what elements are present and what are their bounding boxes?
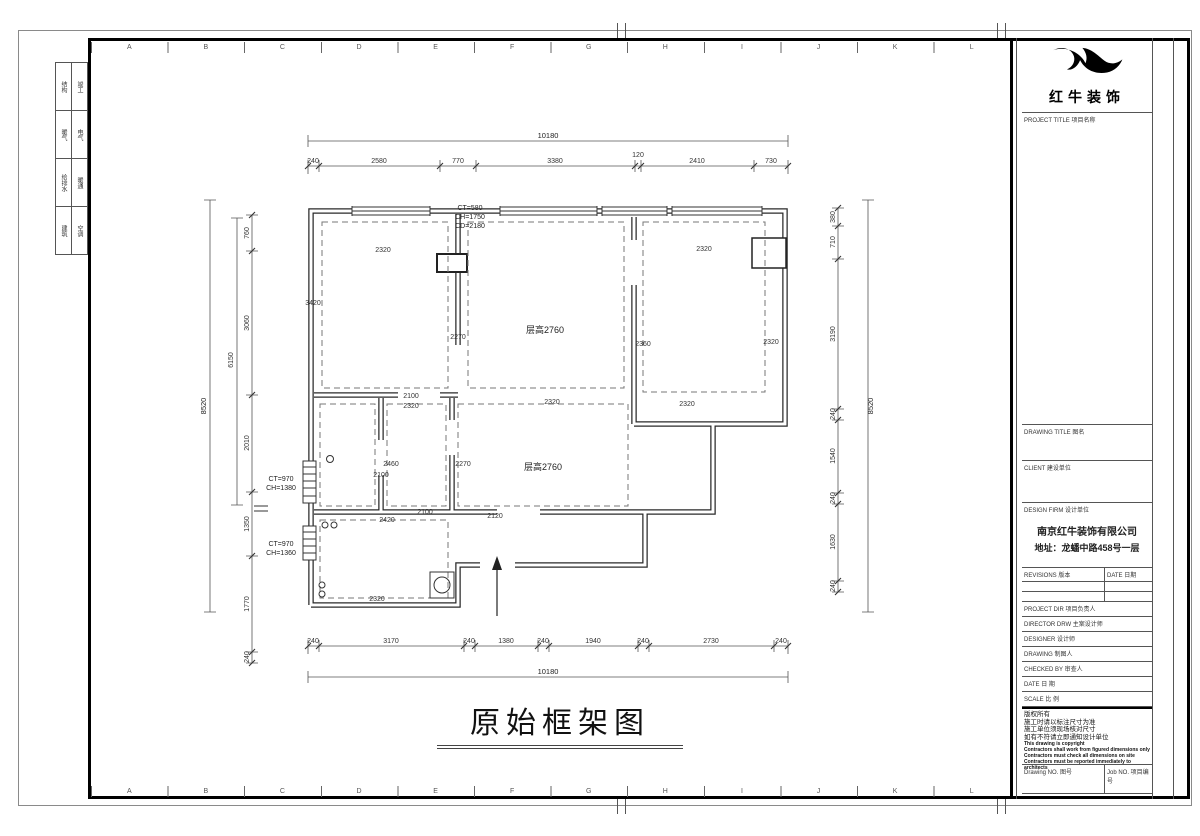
- dimension-lines: [204, 135, 874, 683]
- dim-label: 1630: [830, 534, 837, 550]
- drawing-person-cell: DRAWING 制图人: [1022, 647, 1152, 662]
- dim-label: 6150: [228, 352, 235, 368]
- dim-label: 2360: [635, 341, 651, 348]
- dim-label: 2100: [417, 509, 433, 516]
- window-note: CD=2180: [455, 223, 485, 230]
- dim-label: 2320: [375, 247, 391, 254]
- dim-label: 1380: [498, 638, 514, 645]
- director-cell: DIRECTOR DRW 主案设计师: [1022, 617, 1152, 632]
- revisions-date-label: DATE 日期: [1105, 568, 1152, 581]
- dim-label: 2320: [763, 339, 779, 346]
- project-dir-cell: PROJECT DIR 项目负责人: [1022, 602, 1152, 617]
- dim-label: 2120: [487, 513, 503, 520]
- dim-label: 240: [307, 638, 319, 645]
- designer-cell: DESIGNER 设计师: [1022, 632, 1152, 647]
- title-block: 红牛装饰 PROJECT TITLE 项目名称 DRAWING TITLE 图名…: [1022, 40, 1152, 797]
- dim-label: 2320: [679, 401, 695, 408]
- window-note: CH=1380: [266, 485, 296, 492]
- copyright-line: 如有不符请立即通知设计单位: [1024, 734, 1150, 742]
- dim-label: 240: [830, 492, 837, 504]
- dim-label: 1770: [244, 596, 251, 612]
- dim-label: 2320: [696, 246, 712, 253]
- director-label: DIRECTOR DRW 主案设计师: [1022, 617, 1152, 628]
- dim-label: 2730: [703, 638, 719, 645]
- dim-label: 770: [452, 158, 464, 165]
- dim-label: 2100: [373, 472, 389, 479]
- window-band: [352, 205, 762, 217]
- entry-arrow: [492, 556, 502, 616]
- copyright-line: 施工单位须现场核对尺寸: [1024, 726, 1150, 734]
- dim-label: 8520: [199, 398, 208, 415]
- dim-label: 10180: [538, 667, 559, 676]
- dim-label: 2320: [403, 403, 419, 410]
- dim-label: 120: [632, 152, 644, 159]
- checked-by-cell: CHECKED BY 审查人: [1022, 662, 1152, 677]
- drawing-sheet: A B C D E F G H I J K L A B C D E F G H …: [0, 0, 1200, 836]
- client-cell: CLIENT 建设单位: [1022, 461, 1152, 503]
- dim-label: 1350: [244, 516, 251, 532]
- corner-pier: [752, 238, 786, 268]
- dim-label: 1940: [585, 638, 601, 645]
- dim-label: 3420: [305, 300, 321, 307]
- dim-label: 240: [537, 638, 549, 645]
- revisions-label: REVISIONS 版本: [1022, 568, 1105, 581]
- walls: [311, 211, 785, 605]
- dim-label: 2320: [544, 399, 560, 406]
- dim-label: 240: [830, 580, 837, 592]
- dim-label: 2270: [455, 461, 471, 468]
- copyright-line: 版权所有: [1024, 711, 1150, 719]
- drawing-title-label: DRAWING TITLE 图名: [1022, 425, 1152, 436]
- design-firm-cell: DESIGN FIRM 设计单位 南京红牛装饰有限公司 地址：龙蟠中路458号一…: [1022, 503, 1152, 568]
- dim-label: 380: [830, 211, 837, 223]
- design-firm-name: 南京红牛装饰有限公司: [1022, 523, 1152, 538]
- revisions-row: [1022, 592, 1152, 602]
- copyright-line: 施工时请以标注尺寸为准: [1024, 719, 1150, 727]
- dim-label: 3170: [383, 638, 399, 645]
- design-firm-address: 地址：龙蟠中路458号一层: [1022, 541, 1152, 554]
- room-label: 层高2760: [526, 324, 564, 335]
- dim-label: 1540: [830, 448, 837, 464]
- drawing-no-label: Drawing NO. 图号: [1022, 765, 1105, 794]
- company-logo-cell: 红牛装饰: [1022, 40, 1152, 113]
- dim-label: 3060: [244, 315, 251, 331]
- dim-label: 240: [637, 638, 649, 645]
- window-note: CT=970: [268, 541, 293, 548]
- dim-label: 2100: [403, 393, 419, 400]
- dim-label: 710: [830, 236, 837, 248]
- date-cell: DATE 日 期: [1022, 677, 1152, 692]
- job-no-label: Job NO. 项目编号: [1105, 765, 1152, 794]
- dim-label: 730: [765, 158, 777, 165]
- room-label: 层高2760: [524, 461, 562, 472]
- dim-label: 240: [463, 638, 475, 645]
- drawing-title-cell: DRAWING TITLE 图名: [1022, 425, 1152, 461]
- company-name: 红牛装饰: [1022, 87, 1152, 107]
- window-note: CT=580: [457, 205, 482, 212]
- wall-pier: [437, 254, 467, 272]
- dim-label: 240: [830, 408, 837, 420]
- dim-label: 2270: [450, 334, 466, 341]
- dim-label: 10180: [538, 131, 559, 140]
- dim-label: 2580: [371, 158, 387, 165]
- window-note: CH=1360: [266, 550, 296, 557]
- project-dir-label: PROJECT DIR 项目负责人: [1022, 602, 1152, 613]
- rednote-bull-logo: [1048, 44, 1126, 84]
- copyright-cell: 版权所有 施工时请以标注尺寸为准 施工单位须现场核对尺寸 如有不符请立即通知设计…: [1022, 707, 1152, 765]
- dim-label: 2010: [244, 435, 251, 451]
- designer-label: DESIGNER 设计师: [1022, 632, 1152, 643]
- window-note: CH=1750: [455, 214, 485, 221]
- revisions-header: REVISIONS 版本 DATE 日期: [1022, 568, 1152, 582]
- dim-label: 2410: [689, 158, 705, 165]
- dim-label: 3380: [547, 158, 563, 165]
- client-label: CLIENT 建设单位: [1022, 461, 1152, 472]
- project-title-cell: PROJECT TITLE 项目名称: [1022, 113, 1152, 425]
- design-firm-label: DESIGN FIRM 设计单位: [1022, 503, 1152, 514]
- dim-label: 8520: [866, 398, 875, 415]
- dim-label: 240: [307, 158, 319, 165]
- dim-label: 240: [244, 651, 251, 663]
- checked-by-label: CHECKED BY 审查人: [1022, 662, 1152, 673]
- dim-label: 3190: [830, 326, 837, 342]
- dim-label: 2460: [383, 461, 399, 468]
- revisions-row: [1022, 582, 1152, 592]
- project-title-label: PROJECT TITLE 项目名称: [1022, 113, 1152, 124]
- scale-label: SCALE 比 例: [1022, 692, 1152, 703]
- dim-label: 2420: [379, 517, 395, 524]
- date-label: DATE 日 期: [1022, 677, 1152, 688]
- drawing-person-label: DRAWING 制图人: [1022, 647, 1152, 658]
- dim-label: 760: [244, 227, 251, 239]
- window-note: CT=970: [268, 476, 293, 483]
- drawing-number-cell: Drawing NO. 图号 Job NO. 项目编号: [1022, 765, 1152, 794]
- scale-cell: SCALE 比 例: [1022, 692, 1152, 707]
- dim-label: 2320: [369, 596, 385, 603]
- ceiling-dashed-lines: [320, 222, 765, 598]
- dim-label: 240: [775, 638, 787, 645]
- drawing-title: 原始框架图: [437, 698, 683, 749]
